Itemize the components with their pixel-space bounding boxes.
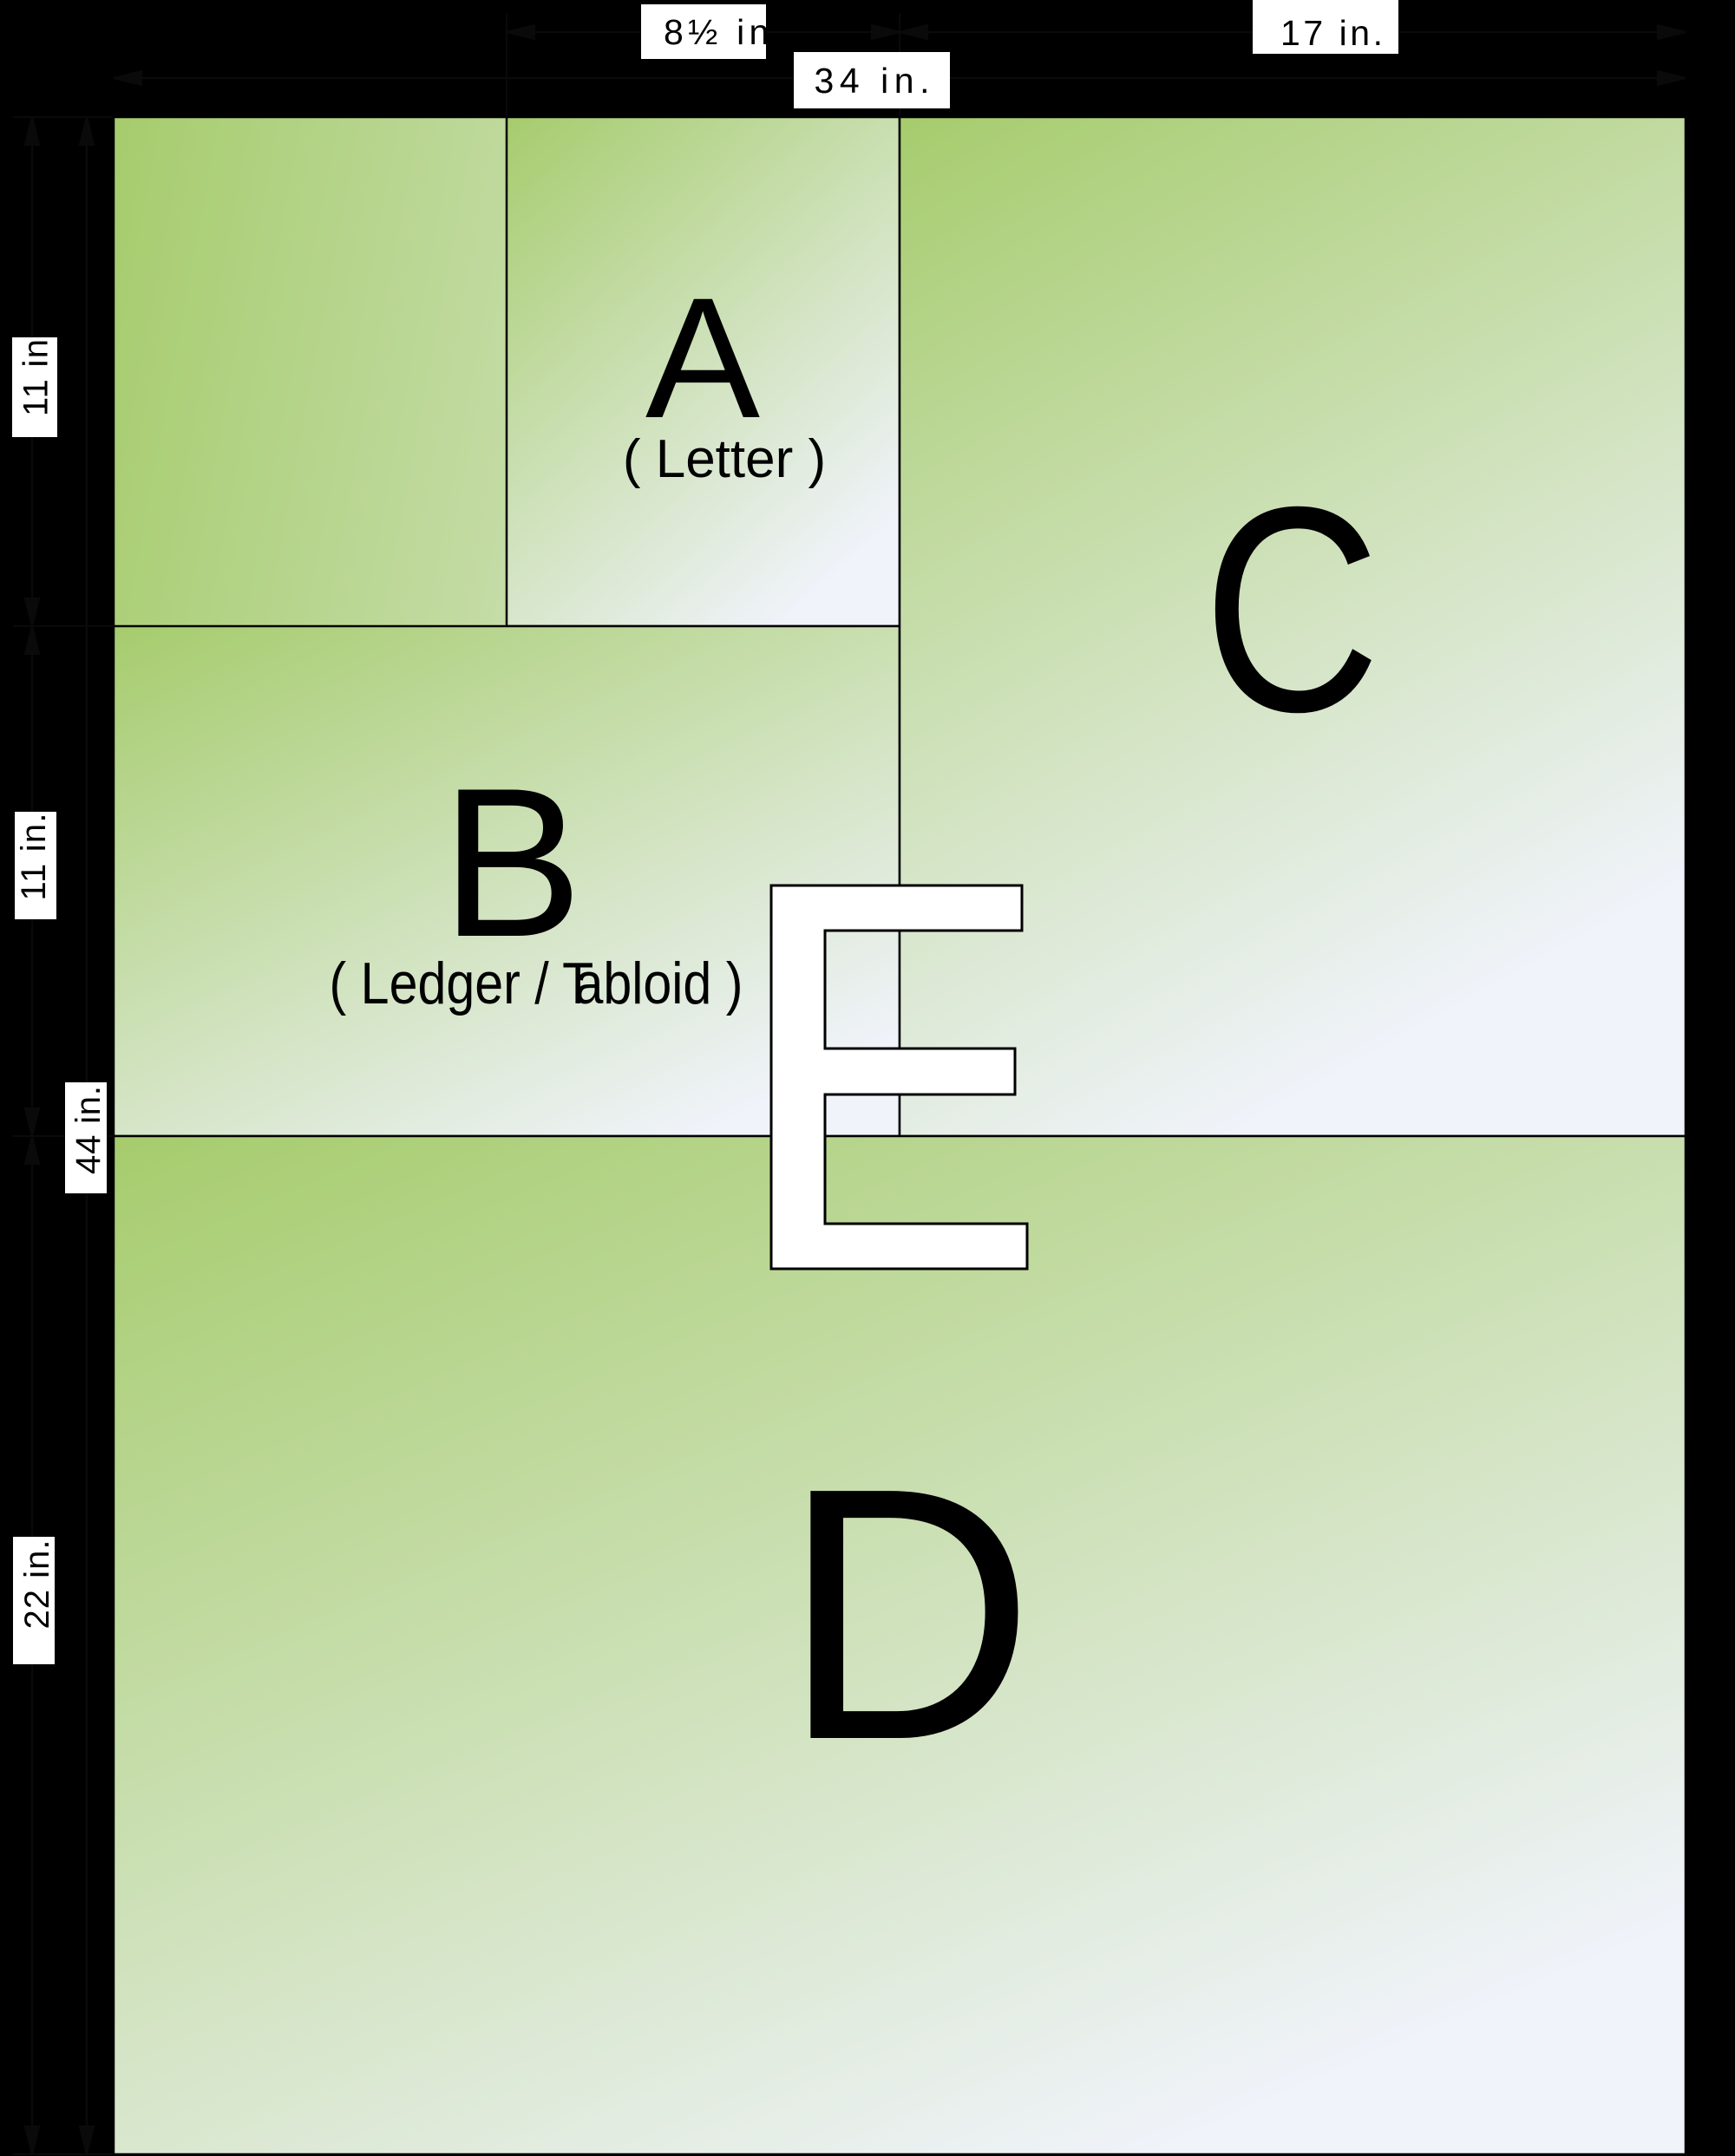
svg-text:D: D: [782, 1413, 1035, 1814]
svg-text:B: B: [441, 743, 582, 981]
svg-text:17 in.: 17 in.: [1280, 13, 1383, 53]
svg-text:34 in.: 34 in.: [815, 61, 930, 101]
svg-text:8½ in.: 8½ in.: [664, 12, 783, 52]
svg-text:11 in: 11 in: [17, 339, 56, 416]
svg-text:11 in.: 11 in.: [15, 813, 53, 901]
svg-text:C: C: [1202, 447, 1380, 773]
svg-text:A: A: [645, 262, 760, 454]
svg-text:44 in.: 44 in.: [69, 1086, 108, 1174]
svg-text:22 in.: 22 in.: [18, 1540, 56, 1630]
svg-text:( Ledger / Tabloid ): ( Ledger / Tabloid ): [330, 950, 743, 1016]
svg-text:( Letter ): ( Letter ): [623, 429, 826, 489]
